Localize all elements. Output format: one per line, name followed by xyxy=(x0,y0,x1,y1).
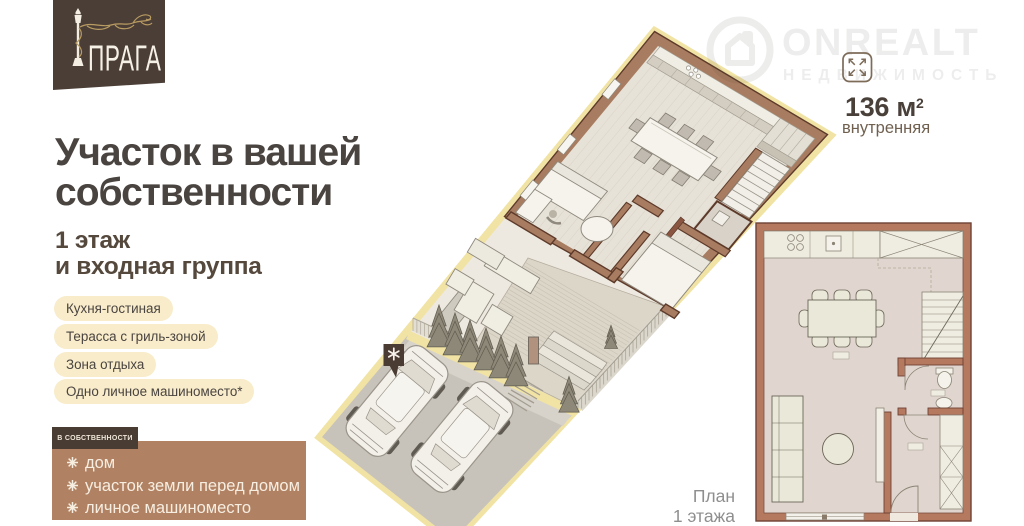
svg-text:ONREALT: ONREALT xyxy=(782,22,980,64)
svg-text:НЕДВИЖИМОСТЬ: НЕДВИЖИМОСТЬ xyxy=(783,67,1003,84)
